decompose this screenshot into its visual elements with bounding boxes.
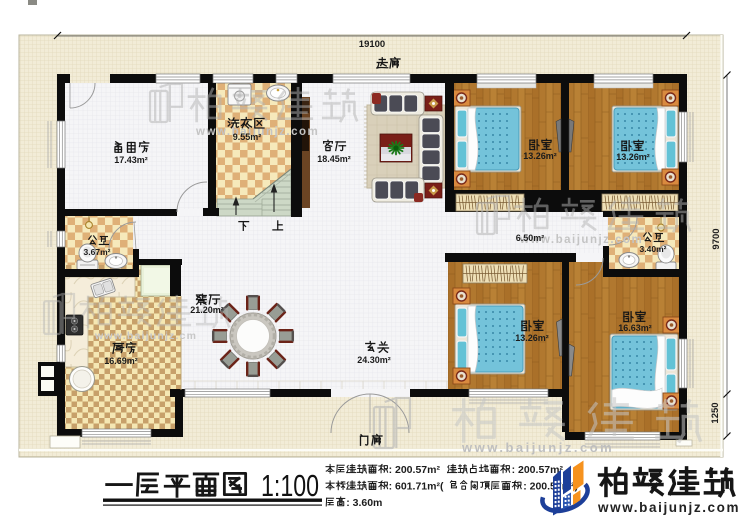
- svg-text:17.43m²: 17.43m²: [114, 155, 148, 165]
- svg-text:13.26m²: 13.26m²: [616, 152, 650, 162]
- svg-text:21.20m²: 21.20m²: [190, 305, 224, 315]
- svg-text:: 200.57m²: : 200.57m²: [389, 464, 441, 476]
- svg-text:3.67m²: 3.67m²: [84, 247, 111, 257]
- svg-text:9.55m²: 9.55m²: [233, 132, 262, 142]
- svg-text:3.40m²: 3.40m²: [640, 244, 667, 254]
- svg-text:www.baijunjz.com: www.baijunjz.com: [597, 500, 740, 515]
- svg-text:16.63m²: 16.63m²: [618, 323, 652, 333]
- svg-text:13.26m²: 13.26m²: [515, 333, 549, 343]
- svg-text:www.baijunjz.cm: www.baijunjz.cm: [94, 330, 197, 342]
- svg-text:13.26m²: 13.26m²: [523, 151, 557, 161]
- svg-text:24.30m²: 24.30m²: [357, 355, 391, 365]
- svg-text:18.45m²: 18.45m²: [317, 154, 351, 164]
- svg-text:: 200.57m²: : 200.57m²: [512, 464, 564, 476]
- svg-text:9700: 9700: [711, 228, 722, 249]
- svg-text:6.50m²: 6.50m²: [516, 233, 545, 243]
- svg-text:16.69m²: 16.69m²: [104, 356, 138, 366]
- svg-text:www.baijunjz.com: www.baijunjz.com: [461, 440, 614, 455]
- svg-text:1250: 1250: [710, 402, 721, 423]
- svg-text:1:100: 1:100: [261, 468, 319, 503]
- svg-text:19100: 19100: [359, 39, 385, 50]
- svg-text:: 3.60m: : 3.60m: [346, 497, 382, 509]
- svg-text:: 601.71m²(: : 601.71m²(: [389, 481, 444, 493]
